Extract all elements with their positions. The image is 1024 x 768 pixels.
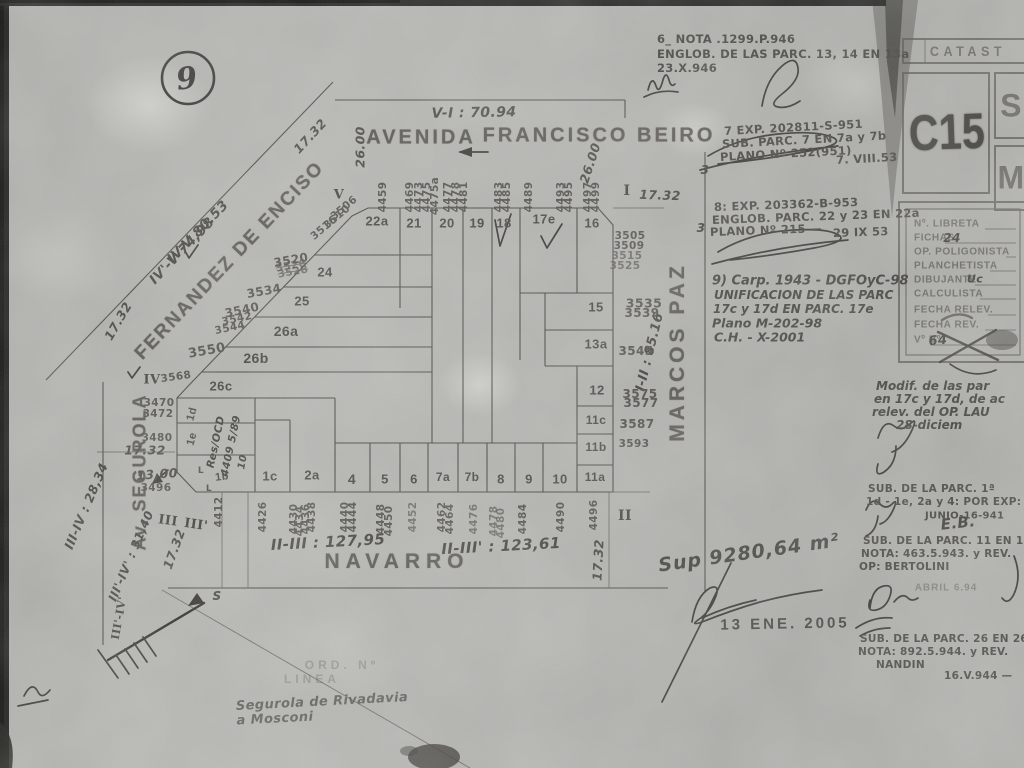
address-mpaz-3577: 3577 xyxy=(624,396,659,410)
address-mpaz-3539: 3539 xyxy=(625,306,660,320)
address-beiro-4499: 4499 xyxy=(590,182,602,213)
address-beiro-4475a: 4475a xyxy=(429,177,441,215)
address-mpaz-3545: 3545 xyxy=(619,344,654,358)
address-navarro-4464: 4464 xyxy=(444,504,456,535)
ord-stamp-line2: LINEA xyxy=(284,672,340,686)
address-navarro-4480: 4480 xyxy=(495,508,507,539)
address-mpaz-3525: 3525 xyxy=(610,260,641,272)
dimension-lines xyxy=(97,208,664,768)
note9-line4: Plano M-202-98 xyxy=(712,316,822,331)
note8-stray-mark: 3 xyxy=(697,221,706,235)
parcel-label-7a: 7a xyxy=(436,470,450,484)
parcel-label-8: 8 xyxy=(497,472,505,487)
catastro-card-title: CATAST xyxy=(930,43,1006,59)
vertex-iv: IV xyxy=(144,373,161,388)
address-navarro-4438: 4438 xyxy=(306,502,318,533)
parcel-label-15: 15 xyxy=(588,300,603,315)
parcel-label-12: 12 xyxy=(589,383,604,398)
measure-v-i: V-I : 70.94 xyxy=(431,104,516,121)
address-segurola-3480: 3480 xyxy=(142,432,173,444)
parcel-label-26b: 26b xyxy=(243,350,268,366)
catastro-box-s: S xyxy=(1000,88,1022,125)
modif-line2: en 17c y 17d, de ac xyxy=(874,392,1005,406)
register-value-fichas: 24 xyxy=(943,231,961,245)
address-navarro-4426: 4426 xyxy=(257,502,269,533)
register-row-fecha-relev: FECHA RELEV. xyxy=(914,305,993,316)
address-segurola-3472: 3472 xyxy=(143,408,174,420)
address-beiro-4489: 4489 xyxy=(523,182,535,213)
register-row-planchetista: PLANCHETISTA xyxy=(914,261,998,272)
measure-1732-corner-ii: 17.32 xyxy=(589,539,606,581)
vertex-iii-prime: III' xyxy=(183,516,209,534)
parcel-label-4: 4 xyxy=(348,471,356,487)
parcel-label-19: 19 xyxy=(469,216,484,231)
parcel-label-13a: 13a xyxy=(585,337,608,352)
sub26-surveyor: NANDIN xyxy=(876,659,925,671)
note9-line5: C.H. - X-2001 xyxy=(714,330,805,345)
sub11-line2: NOTA: 463.5.943. y REV. xyxy=(861,548,1011,560)
register-row-poligonista: OP. POLIGONISTA xyxy=(914,247,1010,258)
address-mpaz-3587: 3587 xyxy=(620,417,655,431)
ord-stamp-line1: ORD. Nº xyxy=(305,658,379,672)
top-note-line3: 23.X.946 xyxy=(657,61,717,75)
parcel-label-17e: 17e xyxy=(533,212,556,227)
address-navarro-4450: 4450 xyxy=(383,506,395,537)
parcel-label-11c: 11c xyxy=(586,413,607,427)
sub1-line2: 1d - 1e, 2a y 4: POR EXP: xyxy=(866,496,1021,508)
sub11-line3: OP: BERTOLINI xyxy=(859,561,950,573)
north-arrow-label: S xyxy=(212,589,221,603)
parcel-label-7b: 7b xyxy=(465,470,480,484)
parcel-label-16: 16 xyxy=(584,216,599,231)
address-navarro-4496: 4496 xyxy=(588,500,600,531)
note9-line3: 17c y 17d EN PARC. 17e xyxy=(713,302,873,316)
modif-line3: relev. del OP. LAU xyxy=(872,405,990,419)
modif-line1: Modif. de las par xyxy=(876,379,989,393)
sub1-initials: E.B. xyxy=(940,512,976,534)
top-note-line1: 6_ NOTA .1299.P.946 xyxy=(657,32,795,46)
sub11-line1: SUB. DE LA PARC. 11 EN 11ª xyxy=(863,535,1024,547)
address-navarro-4444: 4444 xyxy=(347,502,359,533)
register-row-fecha-rev: FECHA REV. xyxy=(914,320,979,331)
sub26-line1: SUB. DE LA PARC. 26 EN 26 xyxy=(860,633,1024,645)
catastro-box-m: M xyxy=(997,160,1024,197)
address-beiro-4495: 4495 xyxy=(563,182,575,213)
parcel-label-25: 25 xyxy=(294,294,309,309)
register-value-dibujante: Uc xyxy=(967,273,983,286)
sub26-line2: NOTA: 892.5.944. y REV. xyxy=(858,646,1008,658)
register-row-calculista: CALCULISTA xyxy=(914,289,983,300)
bench-mark-upper: L xyxy=(198,466,204,476)
parcel-label-24: 24 xyxy=(317,265,332,280)
parcel-label-22a: 22a xyxy=(366,214,389,229)
parcel-label-1c: 1c xyxy=(262,469,277,484)
sub1-line1: SUB. DE LA PARC. 1ª xyxy=(868,483,995,495)
parcel-label-5: 5 xyxy=(381,472,389,487)
address-beiro-4459: 4459 xyxy=(377,182,389,213)
address-beiro-4485: 4485 xyxy=(501,182,513,213)
north-arrow xyxy=(18,593,204,706)
note9-line2: UNIFICACION DE LAS PARC xyxy=(714,288,893,302)
parcel-label-10: 10 xyxy=(552,472,567,487)
top-note-line2: ENGLOB. DE LAS PARC. 13, 14 EN 13a xyxy=(657,47,909,61)
parcel-label-2a: 2a xyxy=(304,468,319,483)
cadastral-plan-scan: 9 6_ NOTA .1299.P.946 ENGLOB. DE LAS PAR… xyxy=(0,0,1024,768)
sub11-date-stamp: ABRIL 6.94 xyxy=(915,583,978,594)
parcel-label-11a: 11a xyxy=(585,470,606,484)
register-value-vobo: 64 xyxy=(928,333,948,350)
street-label-avenida: AVENIDA xyxy=(366,127,476,150)
vertex-ii: II xyxy=(618,508,632,524)
address-mpaz-3593: 3593 xyxy=(619,438,650,450)
measure-1732-segurola: 17.32 xyxy=(124,443,166,458)
address-segurola-3496: 3496 xyxy=(141,482,172,494)
street-label-marcos-paz: MARCOS PAZ xyxy=(666,262,690,442)
sub26-date: 16.V.944 — xyxy=(944,670,1012,682)
parcel-label-26a: 26a xyxy=(274,323,299,339)
catastro-code: C15 xyxy=(908,102,986,163)
parcel-label-21: 21 xyxy=(406,216,421,231)
modif-line4: 28-diciem xyxy=(896,418,962,432)
address-navarro-4452: 4452 xyxy=(407,502,419,533)
measure-26-left: 26.00 xyxy=(353,126,368,168)
address-navarro-4490: 4490 xyxy=(555,502,567,533)
vertex-iii: III xyxy=(157,512,178,530)
address-beiro-4481: 4481 xyxy=(458,182,470,213)
measure-1732-corner-i: 17.32 xyxy=(639,187,681,203)
measure-1300: 13,00 xyxy=(136,465,178,483)
address-navarro-4476: 4476 xyxy=(468,504,480,535)
bench-mark-lower: L xyxy=(206,484,212,494)
parcel-label-6: 6 xyxy=(410,472,418,487)
parcel-label-18: 18 xyxy=(496,216,511,231)
address-navarro-4484: 4484 xyxy=(517,504,529,535)
register-row-libreta: Nº. LIBRETA xyxy=(914,219,980,230)
note8-date: 29 IX 53 xyxy=(833,224,889,240)
parcel-label-9: 9 xyxy=(525,472,533,487)
parcel-label-20: 20 xyxy=(439,216,454,231)
parcel-label-26c: 26c xyxy=(210,379,233,394)
date-received-stamp: 13 ENE. 2005 xyxy=(720,614,850,633)
address-navarro-4412: 4412 xyxy=(213,497,225,528)
note9-line1: 9) Carp. 1943 - DGFOyC-98 xyxy=(712,274,909,289)
note7-stray-mark: 3 xyxy=(701,163,710,177)
vertex-i: I xyxy=(624,183,631,199)
parcel-label-11b: 11b xyxy=(585,440,606,454)
